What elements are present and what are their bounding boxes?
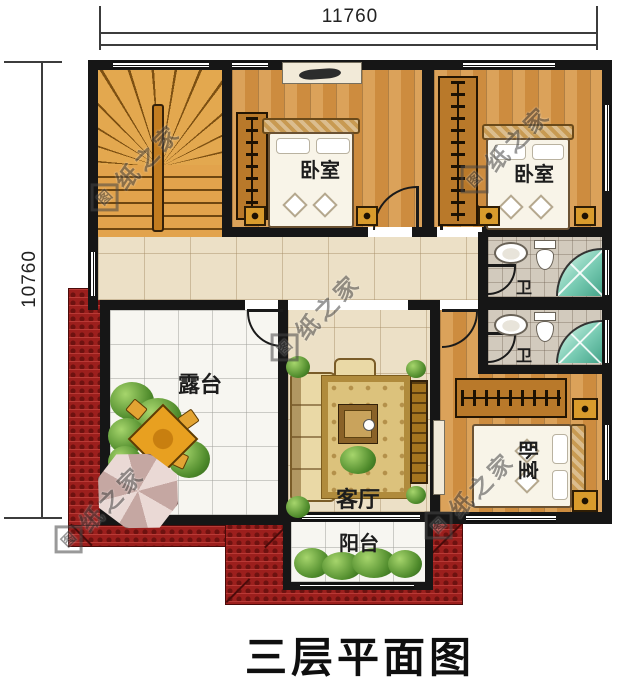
window [466, 514, 556, 522]
watermark-logo: 图 [91, 183, 119, 211]
shelf-icon [433, 420, 445, 495]
dimension-line-left [41, 62, 43, 518]
window-balcony-slider [302, 513, 420, 521]
dimension-height-label: 10760 [19, 241, 41, 317]
wall [100, 300, 245, 310]
window [603, 320, 611, 363]
watermark-logo: 图 [425, 511, 453, 539]
watermark-logo: 图 [271, 333, 299, 361]
dimension-tick [4, 61, 62, 63]
plant-icon [406, 486, 426, 504]
dimension-width-label: 11760 [300, 6, 400, 28]
dimension-tick [4, 517, 62, 519]
wall [222, 227, 368, 237]
wall [422, 70, 434, 232]
plant-icon [406, 360, 426, 378]
dimension-tick [596, 6, 598, 50]
nightstand-icon [574, 206, 596, 226]
tv-cabinet-icon [410, 380, 428, 484]
label-bath-1: 卫 [512, 276, 536, 296]
window [89, 252, 97, 296]
wall [283, 520, 291, 590]
sink-icon [494, 314, 528, 336]
plant-icon [340, 446, 376, 474]
floor-plan: 卧室 卧室 卧室 露台 客厅 阳台 卫 卫 图 纸之家 图 纸之家 图 纸之家 … [0, 0, 640, 686]
watermark-logo: 图 [461, 165, 489, 193]
window [113, 61, 209, 69]
label-bedroom-3: 卧室 [518, 415, 542, 505]
coffee-table-icon [338, 404, 378, 444]
page-title: 三层平面图 [210, 624, 510, 674]
dresser-icon [282, 62, 362, 84]
wardrobe-icon [438, 76, 478, 226]
label-terrace: 露台 [166, 370, 234, 396]
sink-icon [494, 242, 528, 264]
toilet-icon [534, 312, 556, 321]
wall [222, 70, 232, 232]
wall [478, 365, 612, 374]
label-bedroom-1: 卧室 [278, 156, 362, 180]
nightstand-icon [572, 490, 598, 512]
window [603, 425, 611, 480]
wall [408, 300, 440, 310]
label-bath-2: 卫 [512, 344, 536, 364]
hallway-floor [98, 237, 478, 300]
nightstand-icon [572, 398, 598, 420]
dimension-line-top [100, 32, 598, 34]
dimension-line-top-2 [100, 44, 598, 46]
window [463, 61, 555, 69]
plant-icon [286, 496, 310, 518]
nightstand-icon [356, 206, 378, 226]
nightstand-icon [478, 206, 500, 226]
wall [478, 297, 612, 310]
plant-icon [388, 550, 422, 578]
wardrobe-icon [455, 378, 567, 418]
window [603, 250, 611, 295]
window [232, 61, 268, 69]
nightstand-icon [244, 206, 266, 226]
dimension-tick [99, 6, 101, 50]
label-living-room: 客厅 [322, 486, 394, 510]
window [603, 105, 611, 191]
watermark-logo: 图 [55, 525, 83, 553]
window [300, 583, 414, 589]
toilet-icon [534, 240, 556, 249]
label-balcony: 阳台 [330, 530, 388, 552]
